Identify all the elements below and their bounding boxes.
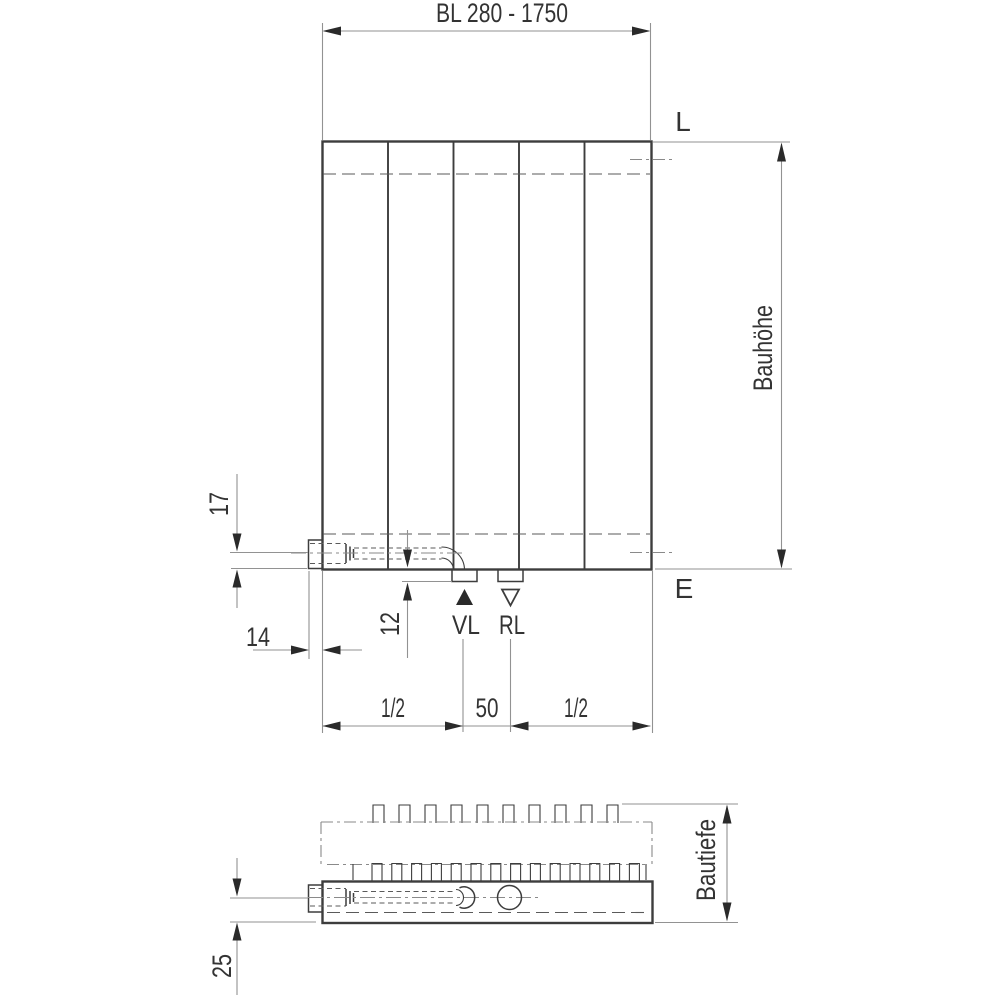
dimension-connection-position: 1/2 50 1/2 — [323, 571, 653, 733]
hidden-header-lines — [323, 174, 650, 534]
block-protrusion-value: 14 — [246, 622, 270, 652]
dimension-overall-height: Bauhöhe — [653, 142, 792, 569]
overall-length-value: BL 280 - 1750 — [436, 0, 568, 28]
lower-body-outline — [323, 882, 653, 924]
plan-pipe-axis-offset-value: 25 — [207, 954, 237, 978]
convector-fins-back-row — [373, 805, 618, 823]
dimension-arrowheads — [291, 646, 341, 655]
extension-lines — [230, 553, 308, 569]
left-span-value: 1/2 — [381, 693, 405, 723]
phantom-panel-outline — [321, 822, 652, 865]
extension-lines — [323, 23, 651, 140]
dimension-plan-pipe-axis-offset: 25 — [207, 858, 316, 995]
dimension-block-protrusion: 14 — [246, 571, 362, 733]
label-connection-e: E — [675, 573, 694, 604]
flow-direction-triangle — [456, 589, 473, 605]
front-view: BL 280 - 1750 Bauhöhe L E 17 14 — [204, 0, 792, 733]
depth-dimension-label: Bautiefe — [691, 819, 721, 901]
dimension-pipe-axis-offset: 17 — [204, 474, 308, 608]
dimension-overall-length: BL 280 - 1750 — [323, 0, 651, 140]
dimension-nozzle-protrusion: 12 — [375, 530, 452, 658]
extension-lines — [230, 898, 316, 922]
radiator-body-outline — [323, 142, 652, 570]
extension-lines — [309, 571, 323, 733]
pipe-axis-offset-value: 17 — [204, 492, 234, 516]
right-span-value: 1/2 — [564, 693, 588, 723]
flow-label: VL — [452, 610, 480, 640]
technical-drawing-page: BL 280 - 1750 Bauhöhe L E 17 14 — [0, 0, 1000, 1000]
dimension-arrowheads — [233, 534, 242, 588]
height-dimension-label: Bauhöhe — [748, 305, 778, 391]
connection-block — [309, 540, 323, 569]
panel-divider-lines — [388, 142, 585, 570]
label-connection-l: L — [675, 106, 691, 137]
connection-spacing-value: 50 — [476, 693, 499, 723]
return-nozzle — [498, 570, 523, 582]
dimension-arrowheads — [403, 550, 412, 601]
nozzle-protrusion-value: 12 — [375, 612, 405, 636]
return-direction-triangle — [502, 590, 519, 606]
plan-valve-assembly — [308, 885, 540, 912]
convector-fins-front-row — [353, 864, 646, 882]
return-label: RL — [499, 610, 525, 640]
plan-view: 25 Bautiefe — [207, 804, 738, 995]
flow-nozzle — [452, 570, 477, 582]
radiator-dimension-drawing: BL 280 - 1750 Bauhöhe L E 17 14 — [0, 0, 1000, 1000]
dimension-arrowheads — [233, 879, 242, 941]
